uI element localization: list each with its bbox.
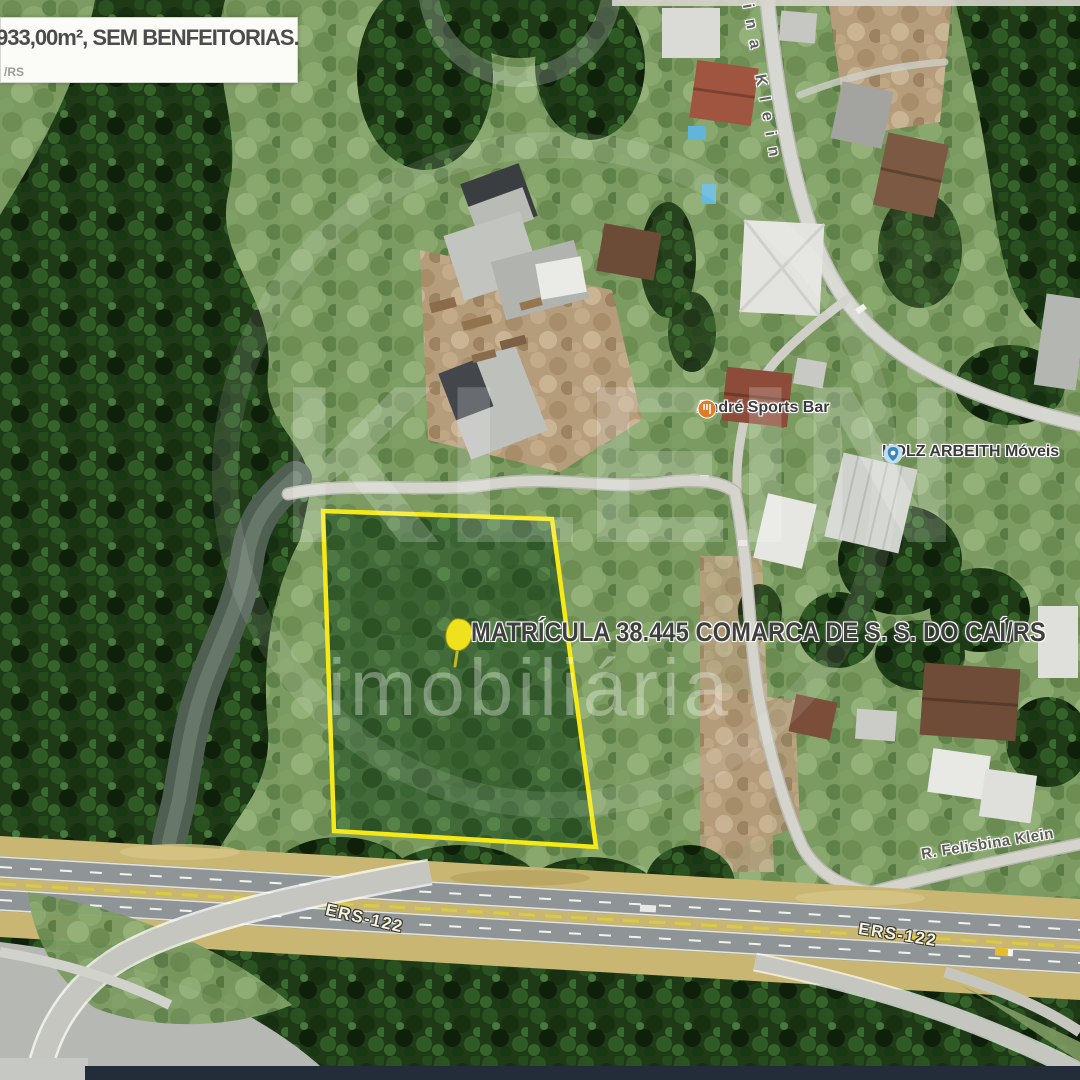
matricula-label: MATRÍCULA 38.445 COMARCA DE S. S. DO CAÍ… (471, 617, 1046, 648)
building (779, 10, 817, 43)
building (979, 769, 1037, 824)
pool (688, 126, 706, 140)
satellite-map: KLEIN imobiliária bina Klein R. Felisbin… (0, 0, 1080, 1080)
poi-label: HOLZ ARBEITH Móveis (882, 443, 1059, 461)
building (855, 709, 897, 742)
info-corner-text: /RS (4, 65, 24, 79)
watermark-subtitle: imobiliária (328, 648, 732, 728)
info-box: 933,00m², SEM BENFEITORIAS. /RS (0, 17, 298, 83)
shopping-pin-icon (882, 443, 904, 465)
restaurant-pin-icon (697, 399, 717, 419)
area-text: 933,00m², SEM BENFEITORIAS. (1, 25, 297, 51)
building (596, 223, 661, 280)
watermark-brand: KLEIN (278, 352, 963, 577)
building (927, 748, 991, 800)
building (662, 8, 720, 58)
poi-holz-arbeith: HOLZ ARBEITH Móveis (882, 443, 1059, 461)
poi-andre-sports-bar: André Sports Bar (697, 399, 829, 417)
